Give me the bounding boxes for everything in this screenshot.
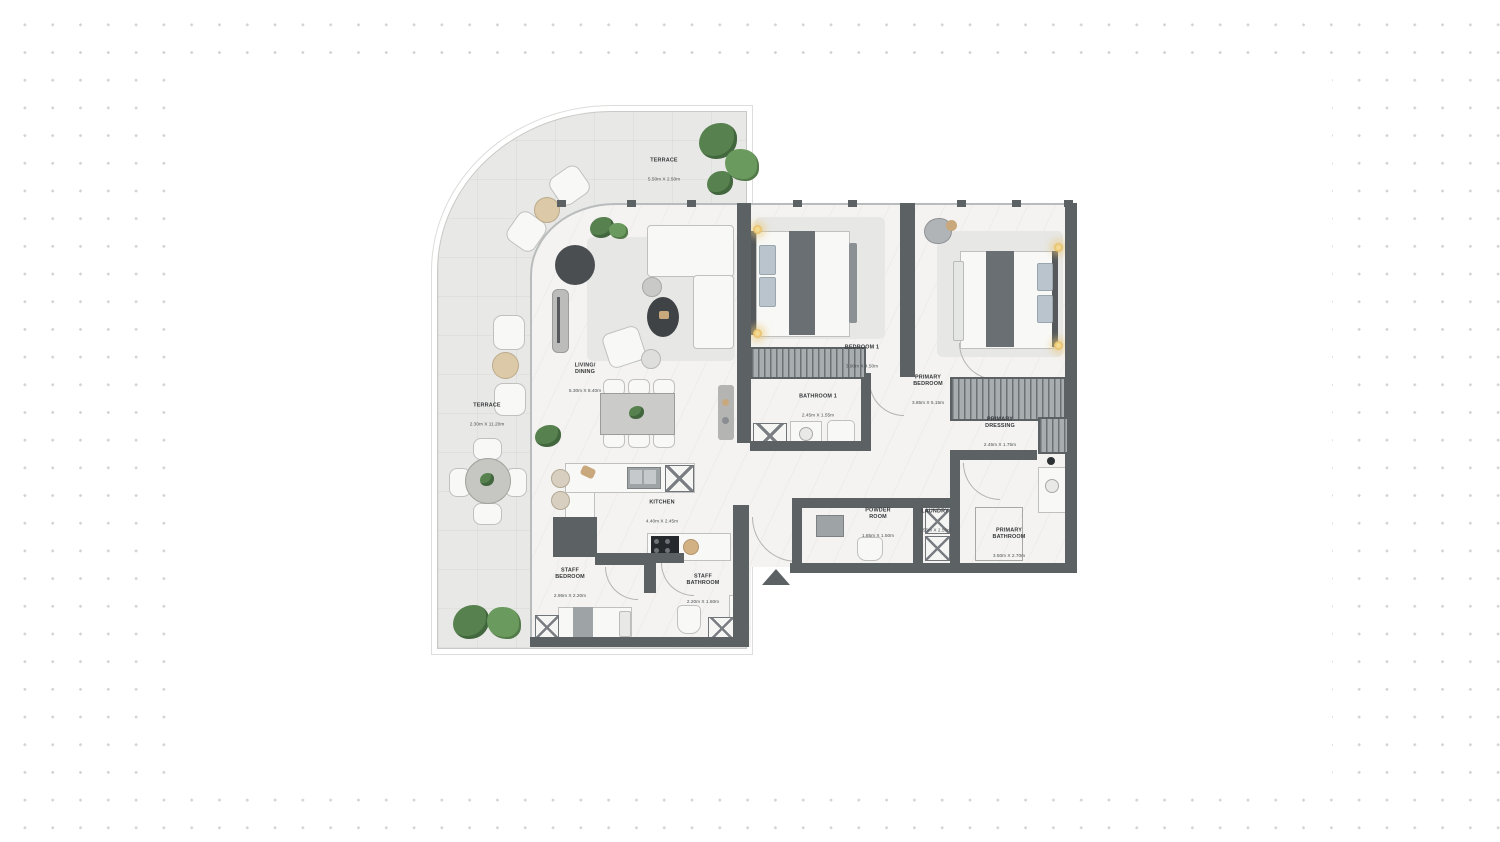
cabinet-knob <box>722 417 729 424</box>
terrace-dining-chair <box>473 438 502 460</box>
bed-runner <box>789 231 815 335</box>
wall <box>644 553 656 593</box>
wall <box>792 498 802 573</box>
room-label-terrace-left: TERRACE 2.30m X 11.20m <box>470 389 505 441</box>
room-label-bathroom-1: BATHROOM 1 2.45m X 1.55m <box>799 380 837 432</box>
room-name: LIVING/ DINING <box>569 362 601 375</box>
window-mullion <box>793 200 802 207</box>
sink-bowl <box>644 470 656 484</box>
room-name: BATHROOM 1 <box>799 393 837 400</box>
wall <box>656 553 684 563</box>
room-dims: 2.45m X 1.55m <box>799 413 837 419</box>
side-table <box>642 277 662 297</box>
room-name: POWDER ROOM <box>862 507 894 520</box>
room-label-laundry: LAUNDRY 1.55m X 2.55m <box>919 495 951 547</box>
bedside-lamp <box>1054 243 1063 252</box>
window-mullion <box>687 200 696 207</box>
room-dims: 2.30m X 11.20m <box>470 422 505 428</box>
dressing-wardrobe <box>1038 417 1069 454</box>
wall <box>737 203 751 443</box>
entrance-arrow-icon <box>762 569 790 585</box>
wall <box>530 637 749 647</box>
room-name: PRIMARY BEDROOM <box>912 374 944 387</box>
wall <box>595 553 647 565</box>
room-label-bedroom-1: BEDROOM 1 3.90m X 4.50m <box>845 331 879 383</box>
page-background: { "page":{ "background_color":"#ffffff",… <box>0 0 1500 842</box>
room-dims: 1.55m X 2.55m <box>919 528 951 534</box>
staff-bed-pillow <box>619 611 631 637</box>
wall <box>750 441 867 451</box>
window-mullion <box>848 200 857 207</box>
round-table-dark <box>555 245 595 285</box>
room-dims: 2.45m X 1.75m <box>984 443 1016 449</box>
bed-pillow <box>759 277 776 307</box>
bedside-lamp <box>1054 341 1063 350</box>
room-dims: 1.85m X 1.50m <box>862 534 894 540</box>
room-name: TERRACE <box>470 402 505 409</box>
wall <box>1065 203 1077 573</box>
sink-basin <box>1045 479 1059 493</box>
burner <box>654 539 659 544</box>
bar-stool <box>551 491 570 510</box>
bed-pillow <box>1037 263 1053 291</box>
plant <box>609 223 628 239</box>
wall <box>900 203 915 377</box>
room-name: TERRACE <box>648 157 680 164</box>
terrace-chair <box>493 315 525 350</box>
room-label-kitchen: KITCHEN 4.40m X 2.45m <box>646 486 678 538</box>
floor-plan: TERRACE 5.50m X 2.50m LIVING/ DINING 5.3… <box>437 105 1082 650</box>
bed-bench <box>953 261 964 341</box>
wall <box>790 563 1077 573</box>
wall <box>733 505 749 647</box>
wall <box>950 450 960 573</box>
room-label-primary-dressing: PRIMARY DRESSING 2.45m X 1.75m <box>984 403 1016 462</box>
bedside-lamp <box>753 329 762 338</box>
decor-pouf <box>946 220 957 231</box>
faucet <box>1047 457 1055 465</box>
bar-stool <box>551 469 570 488</box>
window-mullion <box>957 200 966 207</box>
window-mullion <box>1012 200 1021 207</box>
bed-pillow <box>1037 295 1053 323</box>
room-name: PRIMARY BATHROOM <box>993 527 1026 540</box>
room-label-primary-bedroom: PRIMARY BEDROOM 3.85m X 5.15m <box>912 361 944 420</box>
window-mullion <box>1064 200 1073 207</box>
console-bench <box>552 289 569 353</box>
room-label-living-dining: LIVING/ DINING 5.30m X 8.40m <box>569 349 601 408</box>
sofa-chaise <box>693 275 734 349</box>
room-dims: 5.30m X 8.40m <box>569 389 601 395</box>
burner <box>665 539 670 544</box>
room-name: KITCHEN <box>646 499 678 506</box>
room-label-staff-bedroom: STAFF BEDROOM 2.95m X 2.20m <box>554 554 586 613</box>
bed-pillow <box>759 245 776 275</box>
bed-runner <box>986 251 1014 347</box>
room-dims: 2.95m X 2.20m <box>554 594 586 600</box>
room-name: PRIMARY DRESSING <box>984 416 1016 429</box>
room-label-powder-room: POWDER ROOM 1.85m X 1.50m <box>862 494 894 553</box>
sofa <box>647 225 734 277</box>
window-mullion <box>557 200 566 207</box>
terrace-dining-chair <box>473 503 502 525</box>
room-name: STAFF BATHROOM <box>687 573 720 586</box>
room-label-terrace-top: TERRACE 5.50m X 2.50m <box>648 144 680 196</box>
room-name: LAUNDRY <box>919 508 951 515</box>
cabinet-knob <box>722 399 729 406</box>
room-dims: 5.50m X 2.50m <box>648 177 680 183</box>
console-detail <box>557 297 560 343</box>
room-dims: 2.20m X 1.60m <box>687 600 720 606</box>
room-dims: 4.40m X 2.45m <box>646 519 678 525</box>
room-dims: 3.50m X 2.70m <box>993 554 1026 560</box>
tall-cabinet <box>718 385 734 440</box>
wall <box>861 373 871 451</box>
room-name: STAFF BEDROOM <box>554 567 586 580</box>
bed-bench <box>849 243 857 323</box>
sink-bowl <box>630 470 642 484</box>
side-table <box>641 349 661 369</box>
room-label-staff-bathroom: STAFF BATHROOM 2.20m X 1.60m <box>687 560 720 619</box>
room-dims: 3.85m X 5.15m <box>912 401 944 407</box>
wall <box>553 517 597 557</box>
powder-basin <box>816 515 844 537</box>
room-dims: 3.90m X 4.50m <box>845 364 879 370</box>
coffee-table-book <box>659 311 669 319</box>
room-label-primary-bathroom: PRIMARY BATHROOM 3.50m X 2.70m <box>993 514 1026 573</box>
bedside-lamp <box>753 225 762 234</box>
fruit-bowl <box>683 539 699 555</box>
room-name: BEDROOM 1 <box>845 344 879 351</box>
terrace-side-table <box>492 352 519 379</box>
window-mullion <box>627 200 636 207</box>
